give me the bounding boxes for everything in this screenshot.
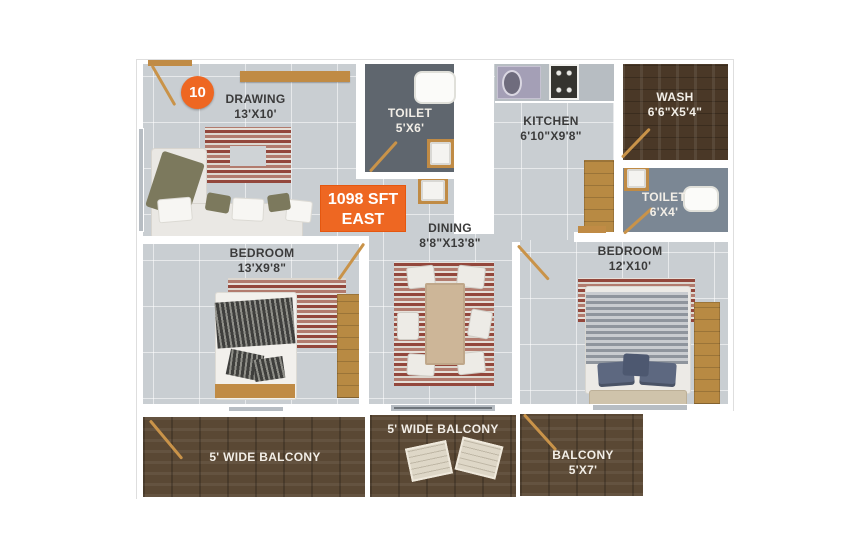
balcony-right-label: BALCONY 5'X7' — [542, 448, 624, 478]
toilet-top-size: 5'X6' — [368, 121, 452, 136]
kitchen-label: KITCHEN 6'10"X9'8" — [496, 114, 606, 144]
bedroom-right-wardrobe — [694, 302, 720, 404]
wall-dining-bedroom-right — [512, 242, 520, 406]
dining-chair — [397, 312, 419, 340]
bedroom-left-footboard — [215, 384, 295, 398]
drawing-label: DRAWING 13'X10' — [198, 92, 313, 122]
wall-kitchen-right — [614, 62, 623, 240]
bathtub — [414, 71, 456, 104]
bedroom-right-size: 12'X10' — [572, 259, 688, 274]
toilet-right-name: TOILET — [628, 190, 700, 205]
dining-sliding-door-track — [394, 407, 492, 409]
bedroom-left-blanket — [214, 297, 295, 348]
area-facing-box: 1098 SFT EAST — [320, 185, 406, 232]
balcony-middle-name: 5' WIDE BALCONY — [380, 422, 506, 437]
bedroom-left-size: 13'X9'8" — [203, 261, 321, 276]
drawing-name: DRAWING — [198, 92, 313, 107]
bedroom-right-window — [592, 404, 688, 411]
bedroom-left-window — [228, 406, 284, 412]
wash-label: WASH 6'6"X5'4" — [628, 90, 722, 120]
bedroom-left-label: BEDROOM 13'X9'8" — [203, 246, 321, 276]
wall-toilet-top-left — [356, 62, 365, 178]
outer-wall-top-line — [136, 59, 733, 60]
wash-size: 6'6"X5'4" — [628, 105, 722, 120]
bedroom-right-label: BEDROOM 12'X10' — [572, 244, 688, 274]
wall-drawing-bedroom — [143, 236, 367, 244]
bedroom-right-door-frame — [578, 226, 606, 233]
bedroom-left-name: BEDROOM — [203, 246, 321, 261]
drawing-rug-center — [230, 146, 266, 166]
sofa-pillow — [231, 197, 264, 222]
outer-wall-left-line — [136, 59, 137, 499]
unit-number-badge: 10 — [181, 76, 214, 109]
kitchen-name: KITCHEN — [496, 114, 606, 129]
balcony-left-label: 5' WIDE BALCONY — [172, 450, 358, 465]
bedroom-right-name: BEDROOM — [572, 244, 688, 259]
dining-size: 8'8"X13'8" — [398, 236, 502, 251]
sofa-pillow — [157, 197, 193, 224]
sofa-cushion — [267, 193, 291, 213]
balcony-left-name: 5' WIDE BALCONY — [172, 450, 358, 465]
toilet-right-basin — [624, 166, 649, 191]
toilet-right-size: 6'X4' — [628, 205, 700, 220]
hall-basin — [418, 177, 448, 204]
kitchen-cabinet — [584, 160, 614, 234]
toilet-right-label: TOILET 6'X4' — [628, 190, 700, 220]
balcony-right-name: BALCONY — [542, 448, 624, 463]
kitchen-sink-bowl — [502, 70, 522, 96]
drawing-window — [138, 128, 144, 232]
kitchen-size: 6'10"X9'8" — [496, 129, 606, 144]
toilet-top-name: TOILET — [368, 106, 452, 121]
wall-bedroom-right-top — [574, 232, 728, 242]
bedroom-right-center-pillow — [622, 353, 649, 376]
toilet-top-basin — [427, 139, 454, 168]
facing-text: EAST — [320, 210, 406, 230]
wall-bedroom-left-dining — [359, 236, 369, 406]
kitchen-stove — [549, 64, 579, 100]
dining-name: DINING — [398, 221, 502, 236]
floor-plan: DRAWING 13'X10' TOILET 5'X6' KITCHEN 6'1… — [0, 0, 862, 555]
duct-void — [454, 62, 494, 234]
wash-name: WASH — [628, 90, 722, 105]
entry-door-panel — [148, 60, 192, 66]
wall-toilet-top-bottom — [356, 172, 456, 179]
drawing-size: 13'X10' — [198, 107, 313, 122]
dining-table — [425, 283, 465, 365]
balcony-right-size: 5'X7' — [542, 463, 624, 478]
dining-label: DINING 8'8"X13'8" — [398, 221, 502, 251]
tv-cabinet — [240, 71, 350, 82]
outer-wall-right-line — [733, 59, 734, 411]
toilet-top-label: TOILET 5'X6' — [368, 106, 452, 136]
area-text: 1098 SFT — [320, 190, 406, 210]
balcony-middle-label: 5' WIDE BALCONY — [380, 422, 506, 437]
wall-wash-toilet — [622, 160, 728, 168]
bedroom-left-pillow — [253, 356, 286, 382]
sofa-cushion — [205, 192, 232, 214]
